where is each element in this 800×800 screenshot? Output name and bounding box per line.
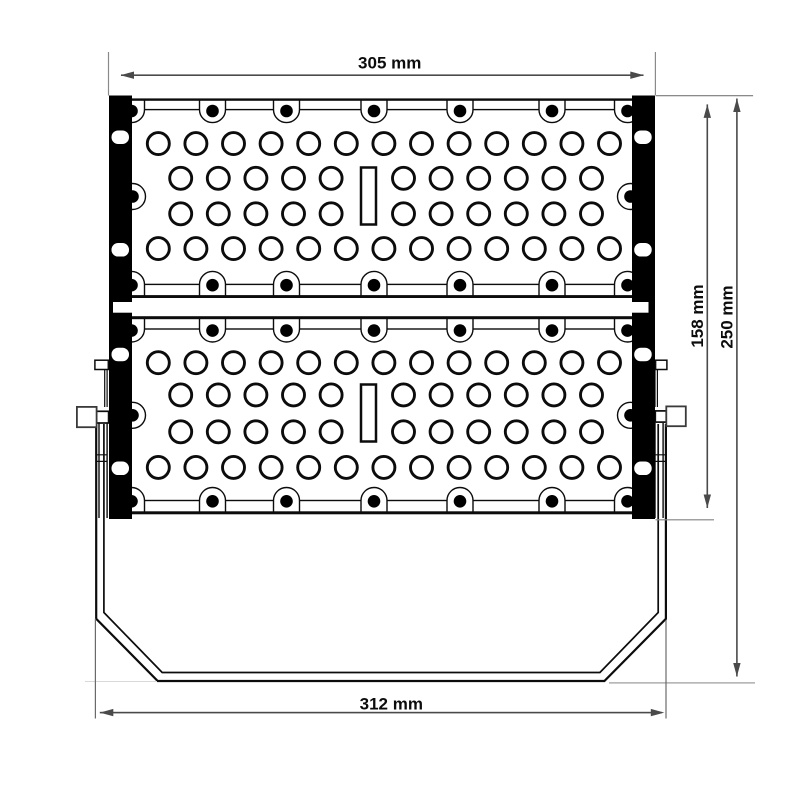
svg-text:158 mm: 158 mm xyxy=(688,284,707,347)
svg-text:250 mm: 250 mm xyxy=(718,285,737,348)
svg-text:312 mm: 312 mm xyxy=(360,694,423,713)
svg-text:305 mm: 305 mm xyxy=(358,54,421,73)
